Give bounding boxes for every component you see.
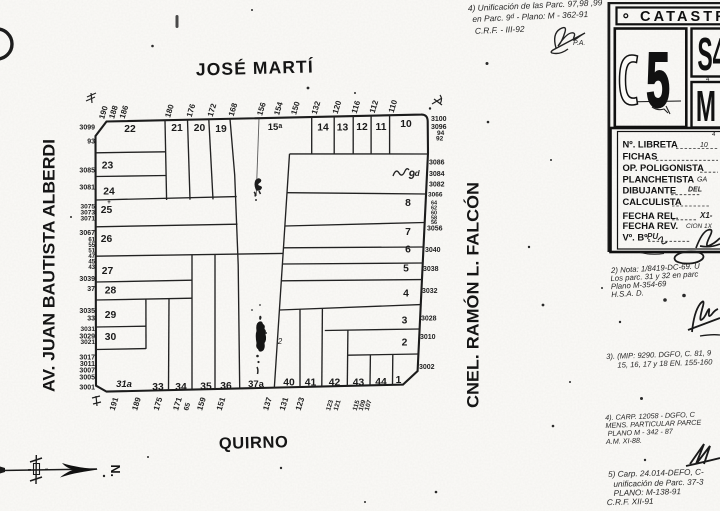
svg-text:3081: 3081: [79, 185, 95, 192]
svg-text:3085: 3085: [79, 168, 95, 175]
svg-text:12: 12: [356, 122, 368, 133]
svg-text:3010: 3010: [420, 334, 436, 341]
svg-text:33: 33: [152, 382, 164, 393]
svg-text:C.R.F. XII-91: C.R.F. XII-91: [607, 497, 654, 507]
svg-text:30: 30: [105, 332, 117, 343]
svg-text:26: 26: [101, 234, 113, 245]
svg-text:25: 25: [101, 205, 113, 216]
svg-text:4: 4: [403, 289, 409, 300]
svg-text:37: 37: [87, 286, 95, 293]
svg-text:3056: 3056: [427, 226, 443, 233]
svg-text:P.A.: P.A.: [573, 40, 585, 47]
svg-text:43: 43: [353, 378, 365, 389]
svg-text:OP. POLIGONISTA: OP. POLIGONISTA: [623, 162, 705, 173]
svg-text:41: 41: [305, 378, 317, 389]
svg-text:6: 6: [405, 245, 411, 256]
svg-text:3040: 3040: [425, 247, 441, 254]
svg-text:34: 34: [175, 382, 187, 393]
svg-text:8: 8: [405, 198, 411, 209]
svg-text:37a: 37a: [248, 379, 265, 390]
svg-text:3071: 3071: [81, 216, 96, 223]
svg-text:CALCULISTA: CALCULISTA: [623, 196, 682, 207]
svg-text:A.M. XI-88.: A.M. XI-88.: [605, 436, 642, 446]
svg-text:23: 23: [102, 161, 114, 172]
svg-text:42: 42: [329, 378, 341, 389]
svg-text:20: 20: [194, 123, 206, 134]
svg-text:19: 19: [215, 124, 227, 135]
svg-text:3002: 3002: [419, 364, 435, 371]
svg-text:92: 92: [436, 136, 444, 143]
svg-text:44: 44: [375, 377, 387, 388]
svg-text:DIBUJANTE: DIBUJANTE: [623, 185, 677, 196]
svg-text:43: 43: [88, 265, 95, 271]
svg-text:CNEL. RAMÓN L. FALCÓN: CNEL. RAMÓN L. FALCÓN: [464, 182, 483, 408]
svg-text:3039: 3039: [79, 276, 95, 283]
svg-text:+: +: [107, 200, 111, 206]
svg-text:35: 35: [200, 382, 212, 393]
svg-text:3035: 3035: [79, 308, 95, 315]
svg-text:2: 2: [277, 337, 283, 346]
svg-text:Nº. LIBRETA: Nº. LIBRETA: [623, 139, 679, 150]
svg-text:JOSÉ MARTÍ: JOSÉ MARTÍ: [196, 55, 315, 79]
svg-text:36: 36: [220, 381, 232, 392]
svg-text:10: 10: [700, 142, 708, 149]
svg-text:7: 7: [405, 227, 411, 238]
svg-text:3038: 3038: [423, 266, 439, 273]
svg-text:5: 5: [403, 264, 409, 275]
svg-text:3066: 3066: [428, 192, 443, 199]
svg-text:3: 3: [402, 316, 408, 327]
svg-text:1: 1: [396, 375, 402, 386]
svg-text:FECHA REV.: FECHA REV.: [623, 220, 679, 231]
svg-text:3099: 3099: [79, 125, 95, 132]
svg-text:40: 40: [283, 378, 295, 389]
svg-text:3084: 3084: [429, 171, 445, 178]
svg-text:GA: GA: [697, 177, 707, 184]
svg-text:QUIRNO: QUIRNO: [219, 433, 289, 453]
svg-text:FICHAS: FICHAS: [623, 150, 658, 161]
svg-text:CATASTRO: CATASTRO: [640, 9, 720, 25]
svg-text:3067: 3067: [79, 230, 95, 237]
svg-text:28: 28: [105, 286, 117, 297]
svg-text:3082: 3082: [429, 182, 445, 189]
svg-text:10: 10: [400, 119, 412, 130]
svg-text:22: 22: [124, 124, 136, 135]
svg-text:3100: 3100: [431, 116, 447, 123]
svg-text:31a: 31a: [116, 379, 132, 390]
svg-text:3028: 3028: [421, 316, 437, 323]
svg-text:S: S: [697, 28, 712, 80]
svg-text:3007: 3007: [79, 368, 95, 375]
svg-text:DEL: DEL: [688, 187, 702, 194]
svg-text:3021: 3021: [81, 339, 96, 346]
svg-text:21: 21: [171, 123, 183, 134]
svg-text:PLANCHETISTA: PLANCHETISTA: [623, 174, 695, 185]
svg-text:PU: PU: [647, 232, 658, 241]
svg-text:24: 24: [103, 187, 115, 198]
svg-text:4: 4: [713, 28, 720, 80]
svg-text:AV. JUAN BAUTISTA ALBERDI: AV. JUAN BAUTISTA ALBERDI: [40, 139, 59, 392]
svg-text:H.S.A. D.: H.S.A. D.: [611, 288, 644, 299]
svg-text:M: M: [696, 81, 716, 131]
svg-text:N.: N.: [108, 465, 122, 478]
svg-text:11: 11: [376, 122, 387, 133]
svg-text:X1-: X1-: [699, 211, 713, 220]
svg-text:27: 27: [102, 266, 114, 277]
svg-text:3031: 3031: [81, 326, 96, 333]
svg-text:2: 2: [402, 338, 408, 349]
svg-text:33: 33: [87, 316, 95, 323]
svg-text:29: 29: [105, 310, 117, 321]
svg-text:3086: 3086: [429, 160, 445, 167]
svg-text:13: 13: [337, 122, 349, 133]
svg-text:3005: 3005: [79, 375, 95, 382]
svg-text:3001: 3001: [79, 385, 95, 392]
svg-text:93: 93: [87, 139, 95, 146]
svg-text:3032: 3032: [422, 288, 438, 295]
svg-text:14: 14: [317, 123, 329, 134]
